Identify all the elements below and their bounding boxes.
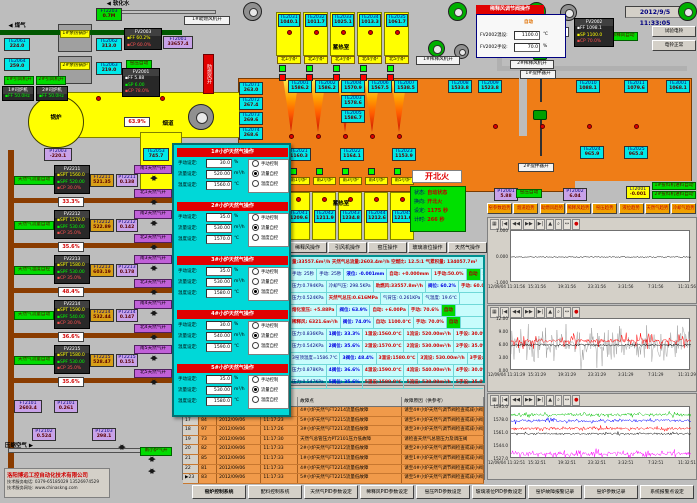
controller-2#司炉机: 2#司炉机▪FF 50.0Hz bbox=[36, 86, 68, 101]
tag-value: 1068.1 bbox=[667, 86, 689, 91]
x-tick: 11:32:51 bbox=[678, 460, 696, 466]
valve-icon: ◀▶ bbox=[150, 355, 164, 363]
summary-row: 熔化室压: +5.88Pa阀位: 63.9%自动: +6.00Pa手动: 70.… bbox=[290, 305, 483, 317]
popup-field-input[interactable]: 1560.0 bbox=[206, 181, 232, 190]
alarm-dot bbox=[343, 134, 348, 139]
label-北3天然气开: 北3天然气开 bbox=[134, 279, 172, 288]
alarm-cell: 97 bbox=[199, 426, 217, 435]
sensor-tag-TE2053: TE2053745.7 bbox=[143, 148, 169, 161]
next-icon[interactable]: ▶▶ bbox=[523, 307, 535, 318]
bell-button-0[interactable]: 试验电铃 bbox=[652, 26, 696, 37]
motor-icon bbox=[533, 110, 547, 120]
popup-field-input[interactable]: 530.00 bbox=[206, 386, 232, 395]
zoom-icon[interactable]: ⌕ bbox=[555, 219, 562, 230]
port-status-leds bbox=[394, 168, 410, 175]
label-南1天然气开: 南1天然气开 bbox=[134, 165, 172, 174]
tag-value: 1586.2 bbox=[289, 86, 311, 91]
nav-button-1[interactable]: 配料控制系统 bbox=[248, 485, 302, 499]
charger1-auto: 1#投料机进料自动 bbox=[652, 182, 696, 190]
tag-value: 1523.8 bbox=[479, 86, 501, 91]
next-icon[interactable]: ▶▶ bbox=[523, 395, 535, 406]
trend-button-4[interactable]: 窑压趋势 bbox=[592, 203, 617, 214]
tag-value: 219.0 bbox=[97, 68, 121, 73]
alarm-cell: 请至2#小炉天然气调节阀检查或减小阀位 bbox=[402, 445, 484, 454]
sensor-tag-TE2032: TE20321011.7 bbox=[305, 14, 327, 27]
alarm-cell: 11:17:23 bbox=[261, 417, 298, 426]
nav-button-7[interactable]: 窑炉参数记录 bbox=[584, 485, 638, 499]
trend-button-7[interactable]: 冷却气趋势 bbox=[671, 203, 696, 214]
marker-icon[interactable]: ▲ bbox=[546, 219, 554, 230]
popup-radio-1[interactable]: 流量自控 bbox=[249, 224, 288, 234]
x-tick: 3:31:56 bbox=[618, 284, 633, 290]
summary-cell: 1手设: 30.0% bbox=[454, 329, 483, 340]
alarm-dot bbox=[374, 197, 379, 202]
popup-radio-2[interactable]: 温度自控 bbox=[249, 288, 288, 298]
popup-field-input[interactable]: 1590.0 bbox=[206, 343, 232, 352]
nav-button-0[interactable]: 窑炉控制系统 bbox=[192, 485, 246, 499]
trend-button-2[interactable]: 助燃风趋势 bbox=[540, 203, 565, 214]
controller-title: FV2001 bbox=[123, 69, 159, 76]
popup-field-input[interactable]: 30.0 bbox=[206, 159, 232, 168]
tag-value: 0.178 bbox=[117, 270, 137, 275]
alarm-dot bbox=[314, 30, 319, 35]
trend-plot-1 bbox=[510, 318, 690, 370]
popup-field-input[interactable]: 1580.0 bbox=[206, 289, 232, 298]
marker-icon[interactable]: ▲ bbox=[546, 307, 554, 318]
label-北2天然气开: 北2天然气开 bbox=[134, 234, 172, 243]
marker-icon[interactable]: ▲ bbox=[546, 395, 554, 406]
comb-fan1-status: 1#助燃风机开 bbox=[184, 16, 230, 25]
sensor-tag-PT2214: PT22140.147 bbox=[116, 309, 138, 322]
label-北4小炉: 北4小炉 bbox=[358, 56, 382, 64]
alarm-cell: 18 bbox=[183, 426, 199, 435]
op-button-4[interactable]: 天然气操作 bbox=[448, 242, 487, 253]
summary-cell: 5温设:1580.0℃ bbox=[363, 377, 405, 388]
controller-FV2003: FV2003▪FF 60.2%▪CP 60.0% bbox=[124, 28, 162, 50]
x-tick: 3:32:51 bbox=[618, 460, 633, 466]
furnace-pressure-auto2: 窑压自动 bbox=[516, 189, 542, 198]
port-status-leds bbox=[316, 168, 332, 175]
tag-value: 33657.4 bbox=[164, 42, 192, 47]
label-南3小炉: 南3小炉 bbox=[339, 177, 362, 185]
tag-value: 263.0 bbox=[240, 88, 262, 93]
tag-value: 298.1 bbox=[93, 434, 115, 439]
summary-cell: 冷却气压: 298.5KPa bbox=[327, 281, 374, 292]
y-tick: 1.000 bbox=[488, 228, 508, 234]
popup-field-unit: % bbox=[234, 322, 248, 331]
radio-icon bbox=[252, 160, 259, 167]
radio-icon bbox=[252, 180, 259, 187]
popup-field-input[interactable]: 530.00 bbox=[206, 224, 232, 233]
alarm-cell: 17 bbox=[183, 417, 199, 426]
controller-title: 2#司炉机 bbox=[37, 87, 67, 94]
summary-cell: 自动 bbox=[447, 317, 461, 328]
tag-value: 1088.1 bbox=[577, 86, 599, 91]
span-icon[interactable]: ↔ bbox=[563, 219, 571, 230]
prev-icon[interactable]: ◀◀ bbox=[510, 395, 522, 406]
summary-cell: 自动: 1100.0℃ bbox=[374, 317, 414, 328]
summary-row: 压力:0.794KPa冷却气压: 298.5KPa助燃风:33557.8m³/h… bbox=[290, 281, 483, 293]
popup-section-title: 4#小炉天然气操作 bbox=[177, 310, 288, 319]
popup-radio-1[interactable]: 流量自控 bbox=[249, 278, 288, 288]
popup-radio-0[interactable]: 手动控制 bbox=[249, 214, 288, 224]
sensor-tag-TE2006: TE20061567.5 bbox=[368, 80, 392, 93]
popup-section-title: 5#小炉天然气操作 bbox=[177, 364, 288, 373]
x-tick: 19:32:51 bbox=[558, 460, 576, 466]
tag-value: 1164.1 bbox=[341, 154, 363, 159]
popup-field-input[interactable]: 35.0 bbox=[206, 267, 232, 276]
last-icon[interactable]: ▶| bbox=[536, 395, 546, 406]
summary-row: 压力:0.836KPa1阀位: 33.3%1温设:1560.0℃1流设: 520… bbox=[290, 329, 483, 341]
sensor-tag-TE2062: TE2062313.0 bbox=[96, 38, 122, 51]
alarm-cell: 请至3#小炉天然气调节阀检查或减小阀位 bbox=[402, 426, 484, 435]
charger2-auto: 2#投料机进料自动 bbox=[652, 191, 696, 199]
valve-position-readout: 48.4% bbox=[58, 287, 84, 297]
x-tick: 15:31:56 bbox=[528, 284, 546, 290]
trend-button-0[interactable]: 窑参数趋势 bbox=[487, 203, 512, 214]
valve-icon: ◀▶ bbox=[150, 265, 164, 273]
summary-cell: 压力:0.524KPa bbox=[290, 293, 327, 304]
valve-icon: ◀▶ bbox=[150, 289, 164, 297]
sensor-tag-TE2001: TE20011586.2 bbox=[288, 80, 312, 93]
ng-branch-1 bbox=[8, 198, 172, 203]
alarm-dot bbox=[540, 124, 545, 129]
popup-field-input[interactable]: 1570.0 bbox=[206, 235, 232, 244]
popup-field-label: 手动设定: bbox=[178, 268, 208, 277]
alarm-row[interactable]: 22812012/09/0611:17:334#小炉天然气FT2214流量低故障… bbox=[183, 465, 484, 475]
popup-field-input[interactable]: 30.0 bbox=[206, 321, 232, 330]
ng-branch-3 bbox=[8, 288, 172, 293]
summary-cell: 2手动:50.0% bbox=[481, 269, 483, 280]
popup-radio-0[interactable]: 手动控制 bbox=[249, 160, 288, 170]
summary-cell: 5阀位: 35.6% bbox=[327, 377, 363, 388]
alarm-row[interactable]: 17842012/09/0611:17:235#小炉天然气FT2215流量低故障… bbox=[183, 417, 484, 427]
summary-cell: 3阀位: 48.4% bbox=[340, 353, 376, 364]
controller-title: 1#司炉机 bbox=[3, 87, 33, 94]
popup-radio-group: 手动控制流量自控温度自控 bbox=[248, 321, 289, 355]
popup-field-unit: % bbox=[234, 268, 248, 277]
popup-field-input[interactable]: 35.0 bbox=[206, 375, 232, 384]
alarm-cell: ▶23 bbox=[183, 474, 199, 483]
popup-radio-1[interactable]: 流量自控 bbox=[249, 170, 288, 180]
valve-icon: ◀▶ bbox=[150, 175, 164, 183]
y-tick: 1544.0 bbox=[488, 443, 508, 449]
trend-button-6[interactable]: 天然气趋势 bbox=[645, 203, 670, 214]
alarm-cell: 11:17:33 bbox=[261, 465, 298, 474]
alarm-dot bbox=[370, 134, 375, 139]
dilution-auto-text: 自动 bbox=[524, 19, 544, 28]
popup-field-unit: m³/h bbox=[234, 333, 248, 342]
prev-icon[interactable]: ◀◀ bbox=[510, 219, 522, 230]
sensor-tag-TE2074: TE2074268.6 bbox=[239, 127, 263, 140]
trend-plot-2 bbox=[510, 406, 690, 458]
popup-field-unit: % bbox=[234, 214, 248, 223]
alarm-cell: 2012/09/06 bbox=[217, 436, 261, 445]
alarm-cell: 83 bbox=[199, 474, 217, 483]
sensor-tag-TE2023: TE20231153.9 bbox=[392, 148, 416, 161]
popup-radio-2[interactable]: 温度自控 bbox=[249, 234, 288, 244]
x-tick: 23:31:29 bbox=[588, 372, 606, 378]
alarm-dot bbox=[160, 96, 165, 101]
op-button-3[interactable]: 玻璃液位操作 bbox=[408, 242, 447, 253]
x-tick: 15:32:51 bbox=[528, 460, 546, 466]
tag-value: 1040.1 bbox=[279, 20, 299, 25]
last-icon[interactable]: ▶| bbox=[536, 219, 546, 230]
summary-cell: 阀位: 74.0% bbox=[341, 317, 374, 328]
op-button-2[interactable]: 窑压操作 bbox=[368, 242, 407, 253]
nav-button-8[interactable]: 系统报警点设定 bbox=[640, 485, 694, 499]
summary-cell: 5手设: 35.0% bbox=[454, 377, 483, 388]
popup-field-unit: ℃ bbox=[234, 290, 248, 299]
alarm-cell: 2012/09/06 bbox=[217, 465, 261, 474]
last-icon[interactable]: ▶| bbox=[536, 307, 546, 318]
popup-radio-0[interactable]: 手动控制 bbox=[249, 376, 288, 386]
summary-cell: 自动 bbox=[467, 269, 481, 280]
tag-value: -0.001 bbox=[627, 192, 649, 197]
sensor-tag-PT2211: PT22110.138 bbox=[116, 174, 138, 187]
radio-icon bbox=[252, 332, 259, 339]
sensor-tag-FT2212: FT2212522.89 bbox=[90, 219, 114, 232]
controller-row: ▪CP 30.0% bbox=[55, 321, 89, 328]
fan-icon bbox=[188, 104, 214, 130]
stop-icon[interactable]: ● bbox=[572, 219, 580, 230]
tag-value: 1153.9 bbox=[393, 154, 415, 159]
alarm-dot bbox=[316, 134, 321, 139]
boiler1-label: 1#余热锅炉 bbox=[60, 30, 90, 38]
popup-radio-1[interactable]: 流量自控 bbox=[249, 386, 288, 396]
popup-radio-2[interactable]: 温度自控 bbox=[249, 342, 288, 352]
popup-field-input[interactable]: 1580.0 bbox=[206, 397, 232, 406]
id-fan1-status: 1#引风机开 bbox=[4, 76, 34, 85]
summary-cell: 3手设: 35.0% bbox=[468, 353, 483, 364]
y-tick: 1561.0 bbox=[488, 430, 508, 436]
popup-radio-group: 手动控制流量自控温度自控 bbox=[248, 159, 289, 193]
op-button-1[interactable]: 引风机操作 bbox=[328, 242, 367, 253]
nav-button-4[interactable]: 窑压PID参数设定 bbox=[416, 485, 470, 499]
reversal-line: 计时: 266 秒 bbox=[414, 216, 462, 225]
label-南5天然气开: 南5天然气开 bbox=[134, 345, 172, 354]
radio-icon bbox=[252, 396, 259, 403]
alarm-cell: 请至5#小炉天然气调节阀检查或减小阀位 bbox=[402, 417, 484, 426]
valve-position-readout: 35.6% bbox=[58, 242, 84, 252]
popup-radio-0[interactable]: 手动控制 bbox=[249, 322, 288, 332]
label-北5小炉: 北5小炉 bbox=[385, 56, 409, 64]
sensor-tag-TE2043: TE20431234.8 bbox=[340, 210, 362, 223]
port-status-leds bbox=[279, 65, 295, 72]
sensor-tag-FT2101: FT21012603.4 bbox=[14, 400, 42, 413]
tag-value: 1211.9 bbox=[315, 216, 335, 221]
sensor-tag-TE2010: TE20101088.1 bbox=[576, 80, 600, 93]
prev-icon[interactable]: ◀◀ bbox=[510, 307, 522, 318]
summary-cell: 压力:0.794KPa bbox=[290, 281, 327, 292]
summary-cell: 手动: 70.0% bbox=[414, 317, 447, 328]
tag-value: 1578.6 bbox=[342, 101, 364, 106]
tag-value: 0.7M bbox=[97, 14, 121, 19]
x-tick: 12/09/04 11:31:56 bbox=[488, 284, 525, 290]
summary-cell: 稀释风: 6321.6m³/h bbox=[290, 317, 341, 328]
popup-field-unit: m³/h bbox=[234, 279, 248, 288]
trend-button-5[interactable]: 液位趋势 bbox=[619, 203, 644, 214]
dilution-row-input[interactable]: 70.0 bbox=[514, 43, 540, 52]
sensor-tag-LT2001: LT2001-0.001 bbox=[626, 186, 650, 199]
trend-button-1[interactable]: 烟道趋势 bbox=[513, 203, 538, 214]
tag-value: 965.8 bbox=[625, 152, 647, 157]
tag-value: 1013.3 bbox=[360, 20, 380, 25]
sensor-tag-TE2061: TE2061224.0 bbox=[4, 38, 30, 51]
alarm-cell: 2012/09/06 bbox=[217, 445, 261, 454]
sensor-tag-TE2073: TE2073269.6 bbox=[239, 112, 263, 125]
alarm-cell: 11:17:33 bbox=[261, 474, 298, 483]
span-icon[interactable]: ↔ bbox=[563, 395, 571, 406]
sensor-tag-TE2064: TE2064259.0 bbox=[4, 58, 30, 71]
zoom-icon[interactable]: ⌕ bbox=[555, 395, 562, 406]
trend-series-1 bbox=[511, 319, 691, 371]
alarm-cell: 11:17:26 bbox=[261, 426, 298, 435]
tag-value: 1570.9 bbox=[342, 86, 364, 91]
alarm-row[interactable]: 18972012/09/0611:17:263#小炉天然气FT2213流量低故障… bbox=[183, 426, 484, 436]
popup-field-label: 温度设定: bbox=[178, 398, 208, 407]
popup-radio-group: 手动控制流量自控温度自控 bbox=[248, 375, 289, 409]
popup-field-unit: ℃ bbox=[234, 398, 248, 407]
popup-field-input[interactable]: 540.00 bbox=[206, 332, 232, 341]
alarm-cell: 81 bbox=[199, 465, 217, 474]
reversal-direction: 开北火 bbox=[412, 170, 462, 183]
label-南3天然气开: 南3天然气开 bbox=[134, 255, 172, 264]
flue-label: 烟道 bbox=[158, 120, 178, 129]
soft-water-label: ◀ 软化水 bbox=[100, 0, 136, 9]
popup-field-label: 手动设定: bbox=[178, 322, 208, 331]
tag-value: 1586.7 bbox=[342, 116, 364, 121]
popup-section-title: 3#小炉天然气操作 bbox=[177, 256, 288, 265]
alarm-row[interactable]: ▶23832012/09/0611:17:335#小炉天然气FT2215流量低故… bbox=[183, 474, 484, 484]
popup-field-input[interactable]: 530.00 bbox=[206, 278, 232, 287]
dilution-row-unit: ℃ bbox=[543, 32, 555, 41]
stop-icon[interactable]: ● bbox=[572, 395, 580, 406]
x-tick: 23:32:51 bbox=[588, 460, 606, 466]
tag-value: 1011.7 bbox=[306, 20, 326, 25]
span-icon[interactable]: ↔ bbox=[563, 307, 571, 318]
x-tick: 12/09/04 11:31:29 bbox=[488, 372, 525, 378]
alarm-dot bbox=[322, 197, 327, 202]
nav-button-5[interactable]: 玻璃液位PID参数设定 bbox=[472, 485, 526, 499]
bell-button-1[interactable]: 电铃正常 bbox=[652, 40, 696, 51]
label-南5小炉: 南5小炉 bbox=[391, 177, 414, 185]
tag-value: 1212.6 bbox=[367, 216, 387, 221]
popup-field-input[interactable]: 520.00 bbox=[206, 170, 232, 179]
sensor-tag-TE2044: TE20441212.6 bbox=[366, 210, 388, 223]
summary-cell: 压力:0.542KPa bbox=[290, 341, 327, 352]
alarm-cell: 请至5#小炉天然气调节阀检查或减小阀位 bbox=[402, 474, 484, 483]
popup-field-label: 手动设定: bbox=[178, 376, 208, 385]
summary-row: 手动: 25秒手动: 25秒液位: -0.001mm自动: +0.000mm1手… bbox=[290, 269, 483, 281]
label-北1天然气开: 北1天然气开 bbox=[134, 189, 172, 198]
tag-value: 267.4 bbox=[240, 103, 262, 108]
tag-value: 313.0 bbox=[97, 44, 121, 49]
summary-cell: 4温设:1590.0℃ bbox=[363, 365, 405, 376]
valve-icon: ◀▶ bbox=[148, 456, 162, 464]
trend-toolbar-0: ▦|◀◀◀▶▶▶|▲⌕↔● bbox=[490, 219, 690, 228]
coal-gas-label: ◀ 煤气 bbox=[2, 22, 32, 31]
alarm-cell: 85 bbox=[199, 455, 217, 464]
label-天然气流量自动: 天然气流量自动 bbox=[14, 311, 54, 320]
summary-row: 3窑顶温度=1586.7℃3阀位: 48.4%3温设:1580.0℃3流设: 5… bbox=[290, 353, 483, 365]
alarm-header-cell: 故障点 bbox=[298, 397, 402, 406]
dilution-row-input[interactable]: 1100.0 bbox=[514, 31, 540, 40]
sensor-tag-TE2005: TE20051586.7 bbox=[341, 110, 365, 123]
popup-field-unit: % bbox=[234, 160, 248, 169]
nav-button-2[interactable]: 天然气PID参数设定 bbox=[304, 485, 358, 499]
radio-icon bbox=[252, 224, 259, 231]
dilution-row-unit: % bbox=[543, 44, 555, 53]
op-button-0[interactable]: 稀释风操作 bbox=[288, 242, 327, 253]
nav-button-3[interactable]: 稀释风PID参数设定 bbox=[360, 485, 414, 499]
x-tick: 11:31:29 bbox=[678, 372, 696, 378]
x-tick: 19:31:29 bbox=[558, 372, 576, 378]
alarm-dot bbox=[634, 124, 639, 129]
tag-value: 6.04 bbox=[564, 194, 586, 199]
reversal-line: 状态: 自动状态 bbox=[414, 189, 462, 198]
alarm-cell: 5#小炉天然气FT2215流量低故障 bbox=[298, 474, 402, 483]
sensor-tag-TE2033: TE20331025.1 bbox=[332, 14, 354, 27]
alarm-row[interactable]: 20822012/09/0611:17:332#小炉天然气FT2212流量低故障… bbox=[183, 445, 484, 455]
controller-FV2215: FV2215▪SPT 1580.0▪SPF 530.00▪CP 35.0% bbox=[54, 345, 90, 374]
alarm-dot bbox=[493, 124, 498, 129]
summary-cell: 阀位: 63.9% bbox=[337, 305, 370, 316]
summary-cell: 2温设:1570.0℃ bbox=[363, 341, 405, 352]
sensor-tag-PT2002: PT20026.04 bbox=[563, 188, 587, 201]
popup-field-label: 手动设定: bbox=[178, 160, 208, 169]
sensor-tag-TE2072: TE2072267.4 bbox=[239, 97, 263, 110]
popup-field-label: 流量设定: bbox=[178, 333, 208, 342]
company-info: 洛阳博远工控自动化技术有限公司技术服务电话: 0379-65185029 135… bbox=[4, 468, 110, 498]
stop-icon[interactable]: ● bbox=[572, 307, 580, 318]
alarm-row[interactable]: 19732012/09/0611:17:30天然气总管压力PT2101压力低故障… bbox=[183, 436, 484, 446]
popup-field-label: 流量设定: bbox=[178, 171, 208, 180]
popup-radio-0[interactable]: 手动控制 bbox=[249, 268, 288, 278]
popup-radio-1[interactable]: 流量自控 bbox=[249, 332, 288, 342]
sensor-tag-TE2002: TE20021586.2 bbox=[315, 80, 339, 93]
sensor-tag-PT2103: PT2103298.1 bbox=[92, 428, 116, 441]
radio-icon bbox=[252, 376, 259, 383]
popup-field-label: 温度设定: bbox=[178, 182, 208, 191]
x-tick: 11:31:56 bbox=[678, 284, 696, 290]
reversal-status-panel: 状态: 自动状态换向: 开北火设定: 1175 秒计时: 266 秒 bbox=[410, 186, 466, 232]
trend-button-3[interactable]: 稀释风趋势 bbox=[566, 203, 591, 214]
sensor-tag-TE3001: TE30011068.1 bbox=[666, 80, 690, 93]
popup-radio-2[interactable]: 温度自控 bbox=[249, 180, 288, 190]
x-tick: 15:31:29 bbox=[528, 372, 546, 378]
zoom-icon[interactable]: ⌕ bbox=[555, 307, 562, 318]
popup-radio-group: 手动控制流量自控温度自控 bbox=[248, 213, 289, 247]
label-北3小炉: 北3小炉 bbox=[331, 56, 355, 64]
controller-row: ▪CP 30.0% bbox=[55, 186, 89, 193]
controller-FV2212: FV2212▪SPT 1570.0▪SPF 530.00▪CP 35.0% bbox=[54, 210, 90, 239]
radio-icon bbox=[252, 288, 259, 295]
trend-series-2 bbox=[511, 407, 691, 459]
summary-cell: 自动: +0.000mm bbox=[387, 269, 432, 280]
summary-cell: 助燃风:33557.8m³/h bbox=[374, 281, 426, 292]
alarm-cell: 请至4#小炉天然气调节阀检查或减小阀位 bbox=[402, 465, 484, 474]
summary-cell: 手动: 25秒 bbox=[317, 269, 344, 280]
popup-field-unit: m³/h bbox=[234, 225, 248, 234]
popup-radio-2[interactable]: 温度自控 bbox=[249, 396, 288, 406]
popup-field-input[interactable]: 35.0 bbox=[206, 213, 232, 222]
tag-value: 1160.3 bbox=[288, 154, 310, 159]
nav-button-6[interactable]: 窑炉故障报警记录 bbox=[528, 485, 582, 499]
alarm-row[interactable]: 21852012/09/0611:17:331#小炉天然气FT2211流量低故障… bbox=[183, 455, 484, 465]
next-icon[interactable]: ▶▶ bbox=[523, 219, 535, 230]
alarm-cell: 11:17:33 bbox=[261, 445, 298, 454]
